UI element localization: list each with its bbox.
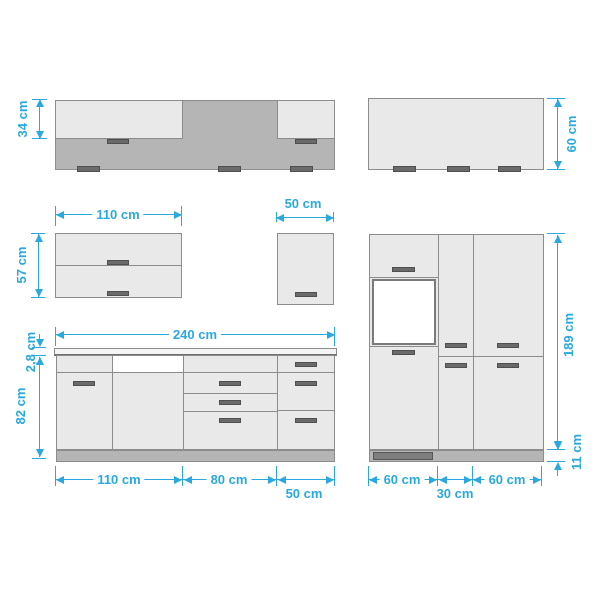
drawer-band-divider [57, 372, 334, 373]
door-divider [370, 346, 438, 347]
drawer-divider [183, 393, 277, 394]
wall-run-flap-cabinet-50 [277, 100, 335, 139]
handle [295, 381, 317, 386]
arrowhead-right-icon [326, 476, 334, 484]
handle [107, 260, 129, 265]
unit-divider [183, 355, 184, 450]
handle [295, 139, 317, 144]
arrowhead-right-icon [174, 211, 182, 219]
plinth [56, 450, 335, 462]
dimension-tick [31, 297, 45, 298]
arrowhead-right-icon [464, 476, 472, 484]
arrowhead-down-icon [554, 161, 562, 169]
arrowhead-up-icon [36, 357, 44, 365]
door-divider [56, 265, 181, 266]
dimension-tick [334, 466, 335, 486]
oven-niche [372, 279, 436, 345]
arrowhead-left-icon [473, 476, 481, 484]
dimension-tick [32, 458, 46, 459]
unit-divider [438, 234, 439, 450]
arrowhead-up-icon [36, 99, 44, 107]
handle [445, 343, 467, 348]
handle [290, 166, 313, 172]
handle [219, 418, 241, 423]
handle [107, 291, 129, 296]
plinth-vent-grille [373, 452, 433, 460]
arrowhead-down-icon [35, 289, 43, 297]
arrowhead-down-icon [36, 131, 44, 139]
handle [497, 343, 519, 348]
wall-run-flap-cabinet-110 [55, 100, 183, 139]
base-cabinet-run [56, 355, 335, 450]
arrowhead-left-icon [439, 476, 447, 484]
arrowhead-right-icon [268, 476, 276, 484]
handle [445, 363, 467, 368]
handle [219, 381, 241, 386]
arrowhead-down-icon [36, 449, 44, 457]
handle [77, 166, 100, 172]
handle [295, 292, 317, 297]
dimension-drawing-canvas: 34 cm 60 cm 110 cm 57 cm 50 cm 240 cm [0, 0, 600, 600]
arrowhead-left-icon [369, 476, 377, 484]
drawer-divider [277, 410, 335, 411]
dimension-tick [437, 466, 438, 486]
handle [107, 139, 129, 144]
handle [73, 381, 95, 386]
handle [498, 166, 521, 172]
arrowhead-left-icon [276, 214, 284, 222]
arrowhead-right-icon [533, 476, 541, 484]
dimension-tick [547, 233, 565, 234]
dimension-tick [547, 169, 565, 170]
arrowhead-left-icon [56, 476, 64, 484]
arrowhead-left-icon [56, 211, 64, 219]
arrowhead-right-icon [429, 476, 437, 484]
arrowhead-left-icon [184, 476, 192, 484]
arrowhead-right-icon [174, 476, 182, 484]
handle [218, 166, 241, 172]
handle [447, 166, 470, 172]
arrowhead-up-icon [554, 99, 562, 107]
dimension-line [557, 99, 558, 169]
arrowhead-left-icon [56, 331, 64, 339]
arrowhead-up-icon [35, 234, 43, 242]
dimension-line [557, 470, 558, 476]
handle [219, 400, 241, 405]
arrowhead-down-icon [554, 442, 562, 450]
arrowhead-right-icon [326, 214, 334, 222]
door-divider [439, 356, 544, 357]
handle [392, 267, 415, 272]
handle [497, 363, 519, 368]
arrowhead-left-icon [278, 476, 286, 484]
dimension-line [39, 357, 40, 457]
handle [392, 350, 415, 355]
drawer-divider [183, 411, 277, 412]
unit-divider [112, 355, 113, 450]
dimension-tick [541, 466, 542, 486]
dimension-line [557, 235, 558, 449]
handle [295, 418, 317, 423]
wall-cabinet-60 [368, 98, 544, 170]
dimension-tick [276, 466, 277, 486]
handle [393, 166, 416, 172]
appliance-gap [113, 356, 183, 372]
dimension-tick [182, 466, 183, 486]
arrowhead-up-icon [554, 462, 562, 470]
arrowhead-right-icon [327, 331, 335, 339]
unit-divider [473, 234, 474, 450]
door-divider [370, 277, 438, 278]
arrowhead-up-icon [554, 235, 562, 243]
handle [295, 362, 317, 367]
dimension-line [38, 234, 39, 297]
unit-divider [277, 355, 278, 450]
